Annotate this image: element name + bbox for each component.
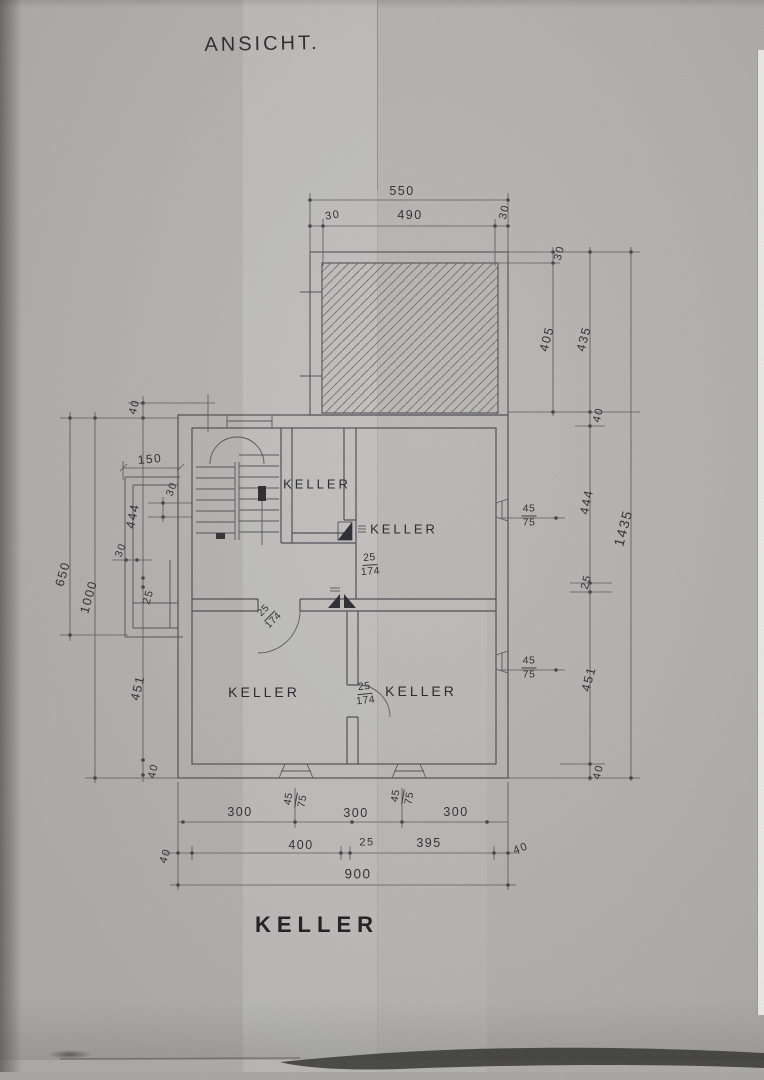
- floor-plan-drawing: [0, 0, 764, 1080]
- spec-denominator: 75: [296, 794, 309, 808]
- spec-numerator: 25: [357, 681, 371, 693]
- door-spec-upper: 25 174: [360, 552, 381, 578]
- window-spec-right-lower: 45 75: [522, 655, 537, 680]
- dim-left-150: 150: [137, 452, 162, 466]
- room-label-lower-right: KELLER: [385, 684, 457, 698]
- dim-bottom-300-mid: 300: [343, 807, 368, 820]
- dim-bottom-395: 395: [416, 837, 441, 850]
- dim-top-overall: 550: [389, 185, 414, 198]
- room-label-lower-left: KELLER: [228, 685, 300, 699]
- dim-bottom-25: 25: [359, 838, 374, 849]
- dim-bottom-400: 400: [288, 839, 313, 852]
- room-label-upper-right: KELLER: [370, 523, 438, 536]
- spec-numerator: 25: [363, 552, 376, 564]
- room-label-top-center: KELLER: [283, 478, 351, 491]
- spec-numerator: 45: [523, 503, 536, 514]
- window-spec-right-upper: 45 75: [522, 503, 537, 528]
- door-spec-lower-divider: 25 174: [354, 681, 376, 708]
- dim-bottom-overall-900: 900: [344, 867, 371, 881]
- dim-bottom-300-left: 300: [227, 806, 252, 819]
- spec-denominator: 75: [523, 518, 536, 529]
- paper-grain: [0, 0, 764, 1080]
- spec-denominator: 75: [523, 670, 536, 681]
- spec-denominator: 174: [361, 566, 381, 578]
- scanned-blueprint-page: ANSICHT. KELLER KELLER KELLER KELLER KEL…: [0, 0, 764, 1080]
- spec-numerator: 45: [523, 655, 536, 666]
- spec-denominator: 75: [403, 791, 416, 805]
- spec-denominator: 174: [356, 694, 376, 707]
- drawing-title-top: ANSICHT.: [204, 33, 319, 55]
- dim-top-opening: 490: [397, 209, 422, 222]
- dim-bottom-300-right: 300: [443, 806, 468, 819]
- drawing-title-bottom: KELLER: [255, 914, 379, 936]
